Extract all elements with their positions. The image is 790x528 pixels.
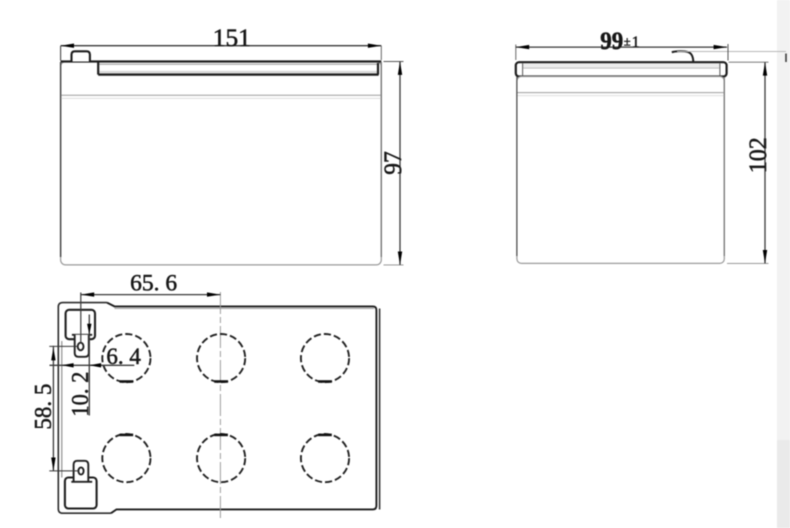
svg-text:±: ± — [624, 35, 631, 49]
svg-text:6. 4: 6. 4 — [106, 344, 141, 369]
svg-text:99: 99 — [600, 28, 623, 55]
svg-text:102: 102 — [745, 137, 772, 173]
svg-text:97: 97 — [380, 151, 407, 175]
svg-text:151: 151 — [213, 25, 251, 52]
svg-text:58. 5: 58. 5 — [31, 384, 57, 430]
svg-text:65. 6: 65. 6 — [130, 270, 177, 295]
svg-text:1: 1 — [632, 34, 640, 51]
svg-text:10. 2: 10. 2 — [68, 372, 94, 417]
